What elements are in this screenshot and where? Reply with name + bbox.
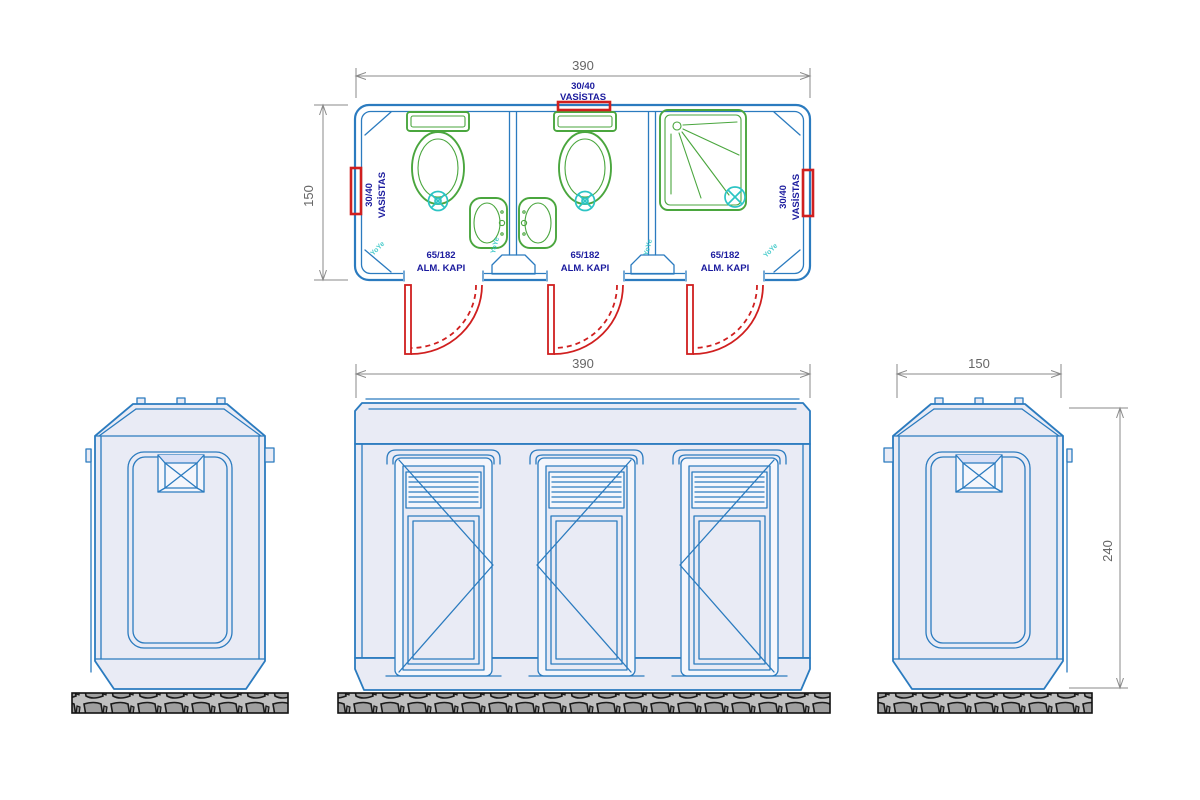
door-label-2: 65/182 ALM. KAPI xyxy=(561,250,610,274)
flush-valve-icon xyxy=(576,192,595,211)
door-label-3: 65/182 ALM. KAPI xyxy=(701,250,750,274)
partition-wall-2 xyxy=(631,112,674,274)
side-tab xyxy=(265,448,274,462)
side-window xyxy=(158,455,204,492)
drain-icon xyxy=(725,187,745,207)
plan-depth-value: 150 xyxy=(301,185,316,207)
door-label-1: 65/182 ALM. KAPI xyxy=(417,250,466,274)
watermark: YoYe xyxy=(643,239,654,257)
container-body xyxy=(95,404,265,689)
ground-hatch-center xyxy=(338,693,830,713)
toilet-fixture-2 xyxy=(554,112,616,211)
side-tab xyxy=(86,449,91,462)
toilet-fixture-1 xyxy=(407,112,469,211)
corner-brace-top-right xyxy=(774,112,800,135)
ground-hatch-left xyxy=(72,693,288,713)
front-width-value: 390 xyxy=(572,356,594,371)
side-window xyxy=(956,455,1002,492)
svg-text:30/40: 30/40 xyxy=(778,185,789,209)
vasistas-marker-right xyxy=(803,170,813,216)
watermark: YoYe xyxy=(763,243,780,260)
corner-brace-top-left xyxy=(365,112,391,135)
front-elevation: 390 xyxy=(338,356,830,713)
vasistas-label-left: 30/40 VASİSTAS xyxy=(364,172,388,218)
ground-hatch-right xyxy=(878,693,1092,713)
plan-width-value: 390 xyxy=(572,58,594,73)
partition-wall-1 xyxy=(492,112,535,274)
vasistas-size: 30/40 xyxy=(571,81,595,92)
technical-drawing-page: 390 150 xyxy=(0,0,1200,800)
right-side-elevation: 150 240 xyxy=(878,356,1128,713)
plan-depth-dimension: 150 xyxy=(301,105,348,280)
shower-tray xyxy=(660,110,746,210)
wc-container-drawing: 390 150 xyxy=(0,0,1200,800)
svg-text:65/182: 65/182 xyxy=(710,250,739,261)
door-elevation-2 xyxy=(529,450,644,676)
shower-head-icon xyxy=(673,122,681,130)
svg-text:30/40: 30/40 xyxy=(364,183,375,207)
svg-text:ALM. KAPI: ALM. KAPI xyxy=(561,263,610,274)
side-tab xyxy=(1067,449,1072,462)
container-body xyxy=(893,404,1063,689)
svg-text:ALM. KAPI: ALM. KAPI xyxy=(701,263,750,274)
door-swing-3 xyxy=(687,285,763,354)
sink-fixture-2 xyxy=(519,198,556,248)
door-swing-1 xyxy=(405,285,482,354)
door-swing-2 xyxy=(548,285,623,354)
svg-text:65/182: 65/182 xyxy=(570,250,599,261)
flush-valve-icon xyxy=(429,192,448,211)
height-dimension: 240 xyxy=(1069,408,1128,688)
door-elevation-1 xyxy=(386,450,501,676)
sink-fixture-1 xyxy=(470,198,507,248)
vasistas-name: VASİSTAS xyxy=(560,92,606,103)
vasistas-label-right: 30/40 VASİSTAS xyxy=(778,174,802,220)
side-tab xyxy=(884,448,893,462)
svg-text:ALM. KAPI: ALM. KAPI xyxy=(417,263,466,274)
front-width-dimension: 390 xyxy=(356,356,810,398)
floor-plan: 390 150 xyxy=(301,58,813,354)
left-side-elevation xyxy=(72,398,288,713)
corner-brace-bottom-right xyxy=(774,250,800,272)
vasistas-label-top: 30/40 VASİSTAS xyxy=(560,81,606,103)
svg-text:VASİSTAS: VASİSTAS xyxy=(791,174,802,220)
door-elevation-3 xyxy=(672,450,787,676)
height-value: 240 xyxy=(1100,540,1115,562)
watermark: YoYe xyxy=(490,237,501,255)
side-width-value: 150 xyxy=(968,356,990,371)
svg-text:65/182: 65/182 xyxy=(426,250,455,261)
svg-text:VASİSTAS: VASİSTAS xyxy=(377,172,388,218)
side-width-dimension: 150 xyxy=(897,356,1061,398)
watermark: YoYe xyxy=(370,241,387,258)
